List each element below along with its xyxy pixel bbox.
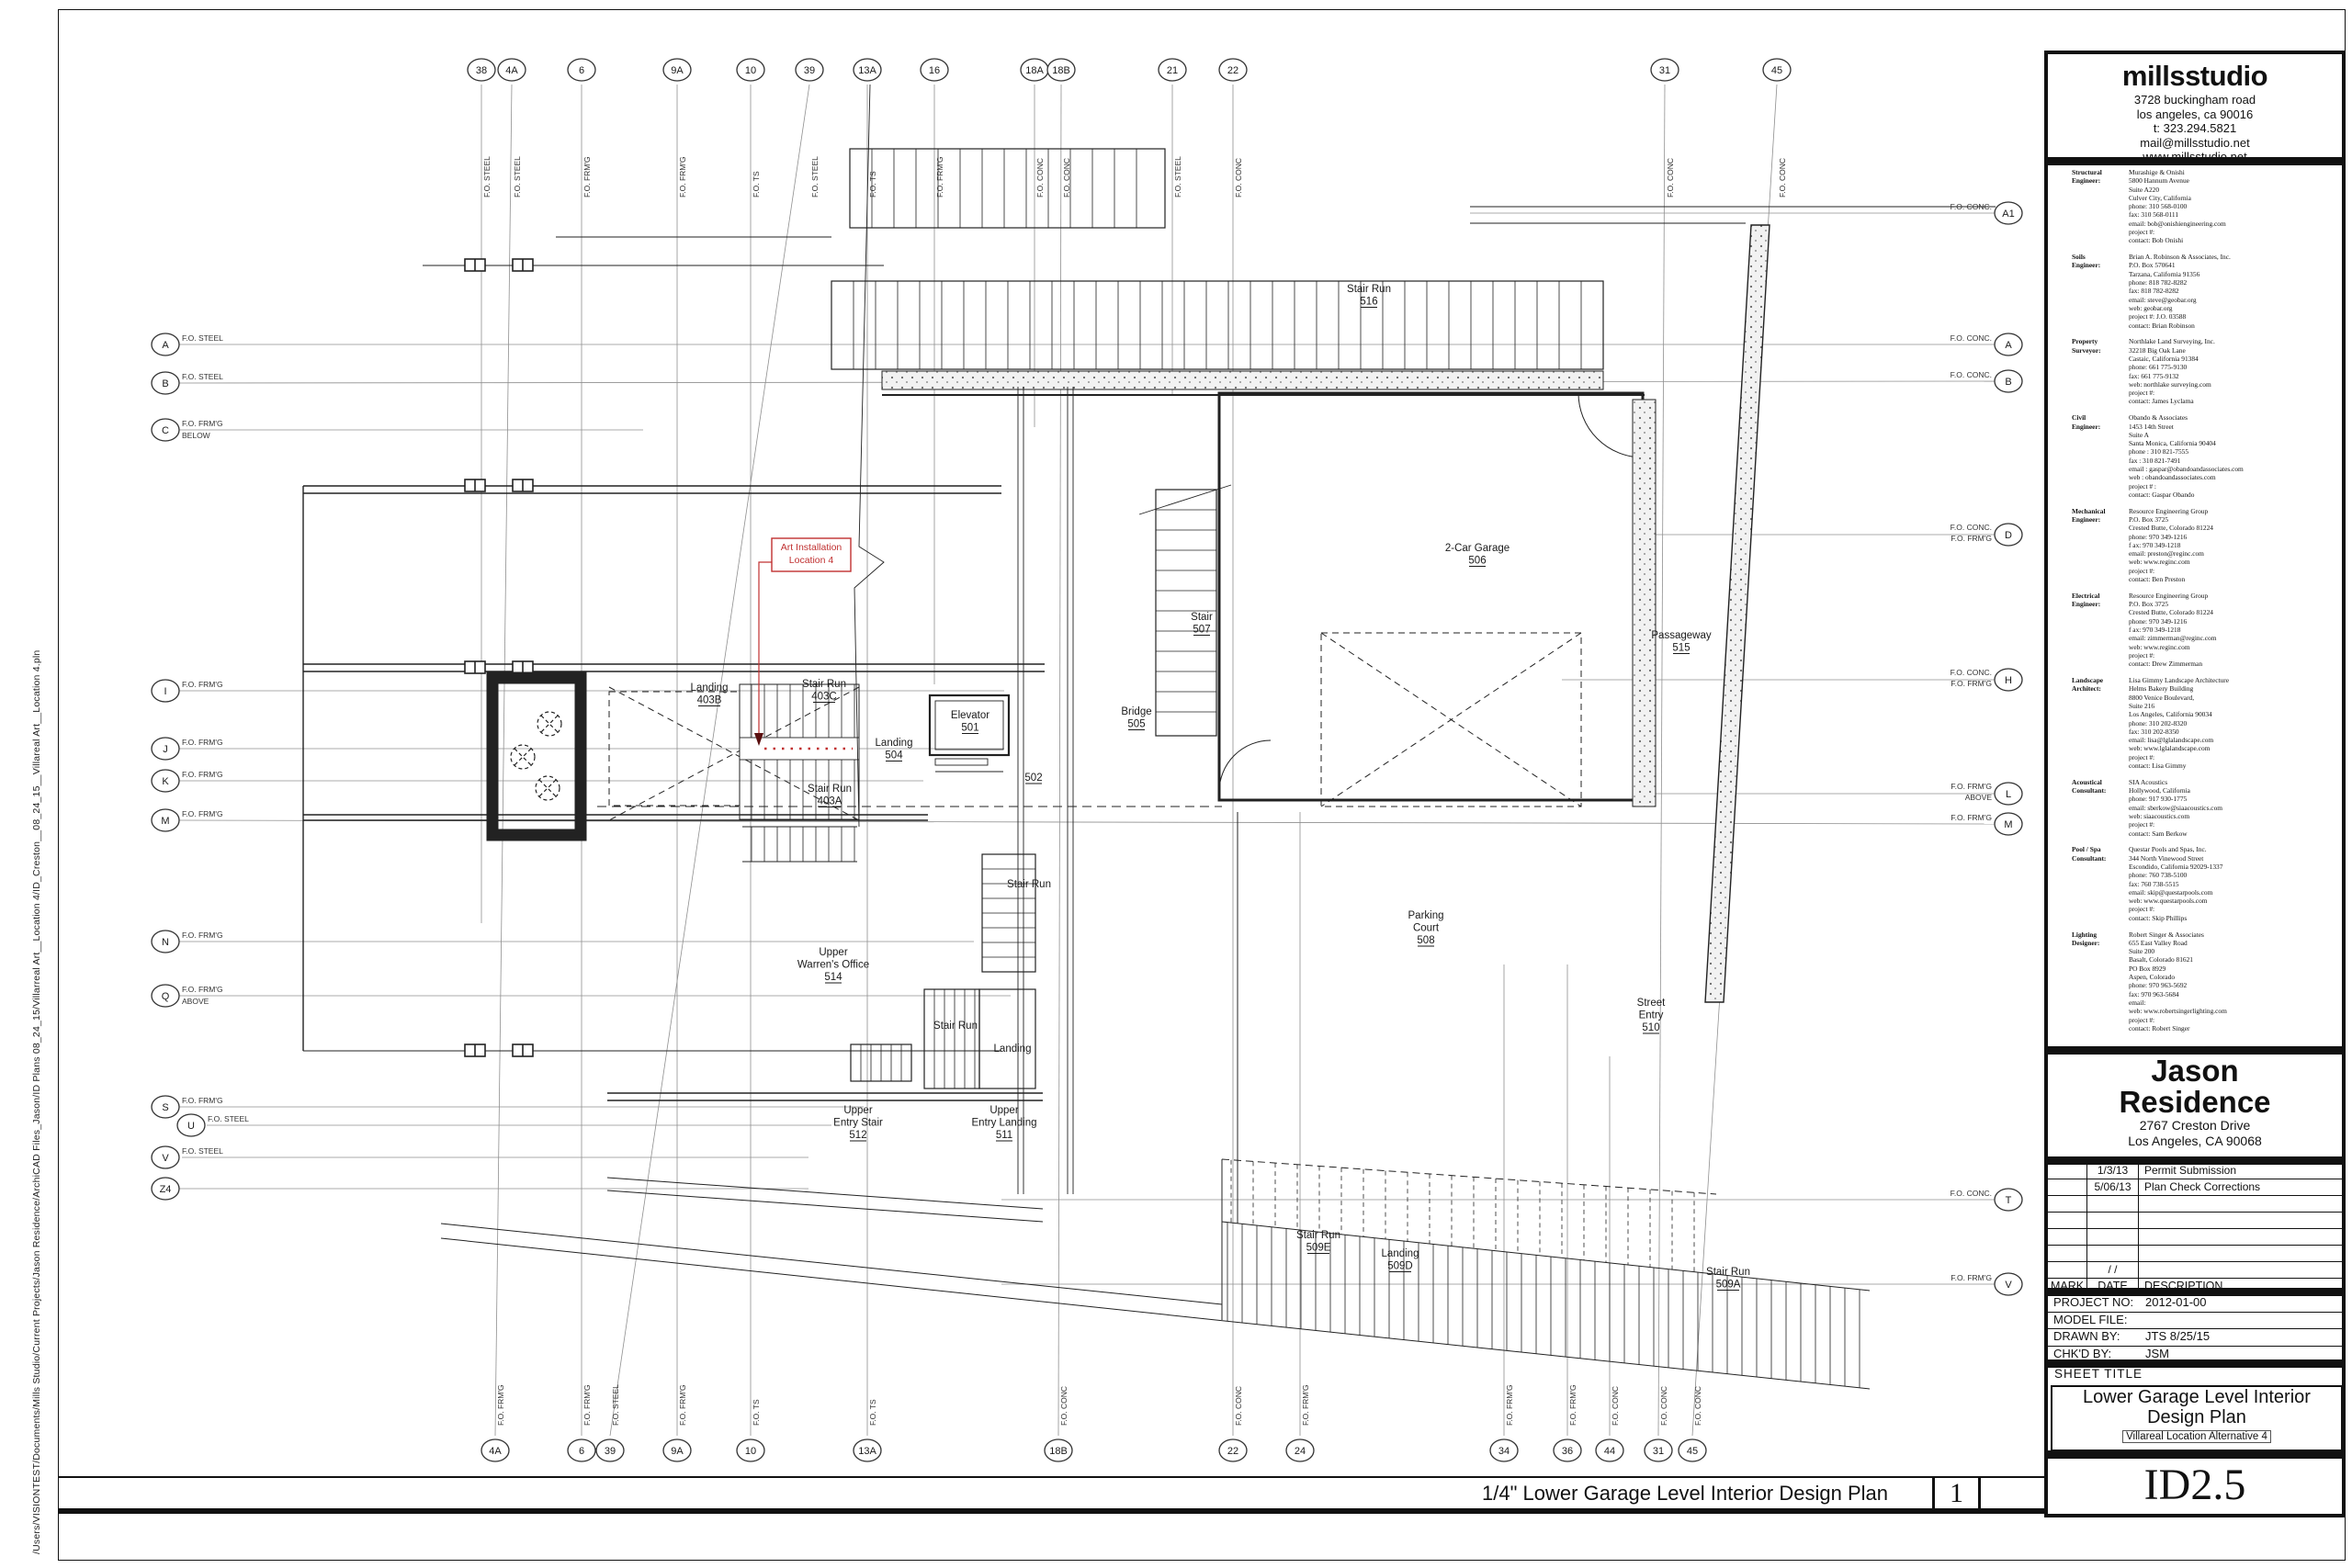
grid-note: F.O. CONC — [1666, 158, 1675, 197]
grid-note: F.O. CONC — [1234, 158, 1243, 197]
sheet-number: ID2.5 — [2048, 1458, 2342, 1513]
concrete-wall-hatch-top — [882, 371, 1603, 389]
svg-text:M: M — [2004, 819, 2012, 830]
room-label: Landing509D — [1382, 1248, 1419, 1272]
grid-note: F.O. FRM'G — [678, 1384, 687, 1426]
stair-run-516 — [831, 281, 1645, 395]
svg-text:Z4: Z4 — [160, 1184, 172, 1195]
svg-text:22: 22 — [1227, 1446, 1238, 1457]
view-number: 1 — [1935, 1478, 1978, 1508]
svg-text:Bridge: Bridge — [1121, 706, 1151, 717]
stair-507 — [1139, 485, 1271, 792]
svg-text:10: 10 — [745, 65, 756, 76]
svg-text:512: 512 — [849, 1130, 866, 1141]
consultant-entry: Lighting Designer:Robert Singer & Associ… — [2072, 931, 2342, 1033]
room-label: StreetEntry510 — [1637, 998, 1666, 1033]
upper-stair-band — [423, 149, 1165, 265]
grid-note: F.O. STEEL — [182, 1146, 223, 1156]
central-stair-403 — [609, 684, 859, 862]
revision-row: / / — [2048, 1262, 2342, 1279]
stair-treads-403b — [752, 827, 854, 862]
svg-text:I: I — [164, 686, 166, 697]
central-walls — [303, 486, 1222, 1222]
consultant-entry: Landscape Architect:Lisa Gimmy Landscape… — [2072, 676, 2342, 770]
revision-row — [2048, 1196, 2342, 1213]
grid-note: F.O. CONC. — [1951, 370, 1992, 379]
svg-text:Landing: Landing — [691, 682, 729, 694]
grid-note: F.O. FRM'G — [1951, 679, 1992, 688]
grid-note: F.O. FRM'G — [1951, 1273, 1992, 1282]
svg-text:504: 504 — [885, 750, 903, 761]
grid-note: F.O. CONC — [1693, 1386, 1702, 1426]
svg-text:18B: 18B — [1049, 1446, 1068, 1457]
title-block: millsstudio 3728 buckingham road los ang… — [2044, 51, 2346, 1517]
grid-note: F.O. FRM'G — [182, 680, 223, 689]
grid-note: F.O. CONC. — [1951, 1189, 1992, 1198]
grid-note: F.O. CONC — [1659, 1386, 1668, 1426]
consultant-entry: Electrical Engineer:Resource Engineering… — [2072, 592, 2342, 669]
sheet-title-header: SHEET TITLE — [2048, 1367, 2342, 1385]
grid-note: F.O. FRM'G — [582, 1384, 592, 1426]
svg-text:Stair: Stair — [1191, 612, 1213, 623]
grid-note: F.O. FRM'G — [182, 419, 223, 428]
svg-text:9A: 9A — [671, 1446, 684, 1457]
grid-note: F.O. FRM'G — [182, 738, 223, 747]
grid-note: F.O. FRM'G — [1951, 782, 1992, 791]
grid-note: F.O. STEEL — [482, 156, 492, 197]
svg-text:39: 39 — [804, 65, 815, 76]
svg-text:44: 44 — [1604, 1446, 1615, 1457]
grid-note: F.O. CONC — [1611, 1386, 1620, 1426]
svg-text:Entry: Entry — [1639, 1010, 1664, 1021]
plan-drawing: 38F.O. STEEL4AF.O. STEEL4AF.O. FRM'G6F.O… — [58, 9, 2044, 1476]
grid-note: F.O. STEEL — [208, 1114, 249, 1123]
svg-text:502: 502 — [1024, 773, 1042, 784]
room-label: ParkingCourt508 — [1408, 910, 1444, 946]
room-label: Landing403B — [691, 682, 729, 706]
grid-note: BELOW — [182, 431, 210, 440]
grid-note: F.O. CONC — [1062, 158, 1071, 197]
svg-text:36: 36 — [1562, 1446, 1573, 1457]
garage-outline — [1219, 393, 1643, 807]
view-title-bar: 1/4" Lower Garage Level Interior Design … — [58, 1476, 2044, 1514]
svg-text:N: N — [162, 937, 169, 948]
grid-bubbles: 38F.O. STEEL4AF.O. STEEL4AF.O. FRM'G6F.O… — [152, 59, 2022, 1461]
art-installation-annotation: Art InstallationLocation 4 — [754, 538, 853, 749]
grid-note: F.O. FRM'G — [582, 156, 592, 197]
project-name-line1: Jason — [2048, 1055, 2342, 1087]
svg-text:31: 31 — [1653, 1446, 1664, 1457]
revision-row: 1/3/13Permit Submission — [2048, 1163, 2342, 1179]
consultant-entry: Civil Engineer:Obando & Associates 1453 … — [2072, 413, 2342, 499]
revision-row: 5/06/13Plan Check Corrections — [2048, 1179, 2342, 1196]
grid-note: F.O. TS — [868, 171, 877, 197]
sheet-title-line2: Design Plan — [2052, 1407, 2341, 1427]
grid-note: F.O. CONC. — [1951, 333, 1992, 343]
room-label: UpperEntry Landing511 — [972, 1105, 1037, 1141]
room-label: Landing — [994, 1043, 1032, 1055]
svg-text:V: V — [162, 1153, 169, 1164]
svg-text:13A: 13A — [858, 1446, 876, 1457]
svg-text:24: 24 — [1295, 1446, 1306, 1457]
drawing-sheet: /Users/VISIONTEST/Documents/Mills Studio… — [0, 0, 2352, 1568]
svg-text:39: 39 — [605, 1446, 616, 1457]
street-entry-wall — [1705, 225, 1770, 1002]
svg-text:Elevator: Elevator — [951, 710, 989, 721]
room-label: Passageway515 — [1651, 630, 1711, 654]
svg-text:506: 506 — [1468, 556, 1486, 567]
firm-address1: 3728 buckingham road — [2048, 93, 2342, 107]
firm-address2: los angeles, ca 90016 — [2048, 107, 2342, 122]
svg-text:Warren's Office: Warren's Office — [797, 960, 869, 971]
consultant-entry: Structural Engineer:Murashige & Onishi 5… — [2072, 168, 2342, 245]
svg-text:Landing: Landing — [876, 738, 913, 749]
grid-note: F.O. STEEL — [1173, 156, 1182, 197]
project-name-line2: Residence — [2048, 1087, 2342, 1118]
svg-text:H: H — [2005, 675, 2012, 686]
grid-note: F.O. FRM'G — [1301, 1384, 1310, 1426]
svg-text:501: 501 — [961, 723, 978, 734]
svg-text:18B: 18B — [1052, 65, 1070, 76]
firm-header: millsstudio 3728 buckingham road los ang… — [2048, 54, 2342, 164]
grid-note: F.O. CONC — [1234, 1386, 1243, 1426]
room-label: Stair Run509E — [1296, 1230, 1340, 1254]
svg-text:403C: 403C — [811, 692, 837, 703]
svg-text:509A: 509A — [1716, 1280, 1741, 1291]
grid-note: F.O. FRM'G — [1951, 534, 1992, 543]
consultants-list: Structural Engineer:Murashige & Onishi 5… — [2048, 168, 2342, 1046]
svg-text:A: A — [2005, 340, 2012, 351]
grid-note: F.O. FRM'G — [182, 931, 223, 940]
consultant-entry: Acoustical Consultant:SIA Acoustics Holl… — [2072, 778, 2342, 838]
info-row: DRAWN BY:JTS 8/25/15 — [2048, 1329, 2342, 1347]
svg-text:31: 31 — [1659, 65, 1670, 76]
svg-text:Upper: Upper — [843, 1105, 872, 1116]
svg-text:S: S — [162, 1102, 168, 1113]
svg-text:509D: 509D — [1387, 1261, 1413, 1272]
room-label: Stair Run403A — [808, 784, 852, 807]
svg-text:Landing: Landing — [1382, 1248, 1419, 1259]
room-label: 2-Car Garage506 — [1445, 543, 1510, 567]
info-row: PROJECT NO:2012-01-00 — [2048, 1295, 2342, 1313]
svg-text:A1: A1 — [2002, 209, 2014, 220]
svg-text:9A: 9A — [671, 65, 684, 76]
svg-text:13A: 13A — [858, 65, 876, 76]
svg-text:4A: 4A — [505, 65, 518, 76]
svg-text:18A: 18A — [1025, 65, 1044, 76]
svg-text:Upper: Upper — [989, 1105, 1018, 1116]
svg-text:34: 34 — [1498, 1446, 1510, 1457]
svg-text:505: 505 — [1127, 719, 1145, 730]
sheet-title-line1: Lower Garage Level Interior — [2052, 1387, 2341, 1407]
room-label: Elevator501 — [951, 710, 989, 734]
grid-note: F.O. FRM'G — [1505, 1384, 1514, 1426]
room-label: Landing504 — [876, 738, 913, 761]
svg-text:U: U — [187, 1121, 195, 1132]
svg-text:D: D — [2005, 530, 2012, 541]
svg-text:10: 10 — [745, 1446, 756, 1457]
grid-note: ABOVE — [182, 997, 209, 1006]
view-title: 1/4" Lower Garage Level Interior Design … — [1482, 1482, 1888, 1506]
svg-text:21: 21 — [1167, 65, 1178, 76]
svg-text:22: 22 — [1227, 65, 1238, 76]
grid-note: F.O. CONC — [1059, 1386, 1069, 1426]
svg-text:Stair Run: Stair Run — [802, 679, 846, 690]
svg-text:L: L — [2006, 789, 2011, 800]
project-info-table: PROJECT NO:2012-01-00MODEL FILE:DRAWN BY… — [2048, 1295, 2342, 1363]
grid-note: F.O. FRM'G — [182, 809, 223, 818]
svg-text:V: V — [2005, 1280, 2012, 1291]
info-row: MODEL FILE: — [2048, 1313, 2342, 1330]
svg-text:Stair Run: Stair Run — [1706, 1267, 1750, 1278]
grid-note: F.O. TS — [752, 1399, 761, 1426]
consultant-entry: Pool / Spa Consultant:Questar Pools and … — [2072, 845, 2342, 922]
svg-text:508: 508 — [1417, 935, 1434, 946]
grid-note: F.O. FRM'G — [496, 1384, 505, 1426]
grid-note: F.O. CONC — [1035, 158, 1045, 197]
room-label: Stair Run516 — [1347, 284, 1391, 308]
annotation-line2: Location 4 — [789, 555, 834, 566]
svg-text:507: 507 — [1193, 625, 1210, 636]
svg-text:6: 6 — [579, 1446, 584, 1457]
svg-text:38: 38 — [476, 65, 487, 76]
svg-text:4A: 4A — [489, 1446, 502, 1457]
svg-text:A: A — [162, 340, 169, 351]
room-label: UpperWarren's Office514 — [797, 947, 869, 983]
grid-note: F.O. TS — [752, 171, 761, 197]
svg-text:509E: 509E — [1306, 1243, 1331, 1254]
svg-text:Stair Run: Stair Run — [1296, 1230, 1340, 1241]
svg-text:K: K — [162, 776, 169, 787]
svg-text:514: 514 — [824, 972, 842, 983]
passageway-wall — [1633, 400, 1656, 807]
svg-text:Stair Run: Stair Run — [933, 1021, 978, 1032]
room-label: Stair Run — [1007, 879, 1051, 890]
svg-text:Stair Run: Stair Run — [1007, 879, 1051, 890]
room-label: Stair Run — [933, 1021, 978, 1032]
svg-text:510: 510 — [1642, 1022, 1659, 1033]
garage-clearance-box — [1321, 633, 1581, 807]
grid-note: F.O. CONC. — [1951, 668, 1992, 677]
revision-row — [2048, 1229, 2342, 1246]
svg-text:B: B — [162, 378, 168, 389]
consultant-entry: Mechanical Engineer:Resource Engineering… — [2072, 507, 2342, 584]
svg-text:403B: 403B — [697, 695, 722, 706]
svg-text:403A: 403A — [818, 796, 842, 807]
room-label: Bridge505 — [1121, 706, 1151, 730]
firm-phone: t: 323.294.5821 — [2048, 121, 2342, 136]
project-address1: 2767 Creston Drive — [2048, 1118, 2342, 1134]
firm-email: mail@millsstudio.net — [2048, 136, 2342, 151]
svg-text:16: 16 — [929, 65, 940, 76]
svg-text:Parking: Parking — [1408, 910, 1444, 921]
grid-note: F.O. STEEL — [182, 333, 223, 343]
grid-note: F.O. STEEL — [810, 156, 820, 197]
annotation-leader — [759, 562, 772, 733]
room-label: 502 — [1024, 773, 1042, 784]
project-block: Jason Residence 2767 Creston Drive Los A… — [2048, 1055, 2342, 1149]
project-address2: Los Angeles, CA 90068 — [2048, 1134, 2342, 1149]
svg-text:Landing: Landing — [994, 1043, 1032, 1055]
svg-text:B: B — [2005, 377, 2011, 388]
svg-text:Stair Run: Stair Run — [808, 784, 852, 795]
svg-text:Stair Run: Stair Run — [1347, 284, 1391, 295]
consultant-entry: Property Surveyor:Northlake Land Surveyi… — [2072, 337, 2342, 405]
grid-note: F.O. STEEL — [182, 372, 223, 381]
sheet-title-box: Lower Garage Level Interior Design Plan … — [2051, 1385, 2343, 1451]
room-label: Stair507 — [1191, 612, 1213, 636]
grid-note: F.O. CONC. — [1951, 523, 1992, 532]
svg-text:Q: Q — [162, 991, 170, 1002]
grid-note: F.O. FRM'G — [1568, 1384, 1577, 1426]
svg-text:Entry Stair: Entry Stair — [833, 1118, 883, 1129]
grid-note: F.O. FRM'G — [182, 770, 223, 779]
svg-text:515: 515 — [1672, 643, 1690, 654]
revision-row — [2048, 1246, 2342, 1262]
svg-text:T: T — [2006, 1195, 2012, 1206]
svg-text:M: M — [161, 816, 169, 827]
revision-table: 1/3/13Permit Submission5/06/13Plan Check… — [2048, 1163, 2342, 1295]
divider-bar — [2048, 157, 2342, 165]
svg-text:45: 45 — [1687, 1446, 1698, 1457]
consultant-entry: Soils Engineer:Brian A. Robinson & Assoc… — [2072, 253, 2342, 330]
grid-note: F.O. FRM'G — [1951, 813, 1992, 822]
svg-text:516: 516 — [1360, 297, 1377, 308]
grid-note: F.O. CONC. — [1951, 202, 1992, 211]
svg-text:Street: Street — [1637, 998, 1666, 1009]
bridge-corridor-walls — [1018, 387, 1073, 1194]
room-label: UpperEntry Stair512 — [833, 1105, 883, 1141]
grid-note: F.O. FRM'G — [182, 985, 223, 994]
svg-text:Entry Landing: Entry Landing — [972, 1118, 1037, 1129]
stair-treads-516 — [854, 281, 1581, 369]
annotation-line1: Art Installation — [781, 542, 842, 553]
art-fixture-icons — [511, 712, 561, 800]
svg-text:6: 6 — [579, 65, 584, 76]
file-path: /Users/VISIONTEST/Documents/Mills Studio… — [31, 29, 42, 1554]
grid-note: F.O. STEEL — [513, 156, 522, 197]
art-wall — [492, 678, 581, 835]
svg-text:2-Car Garage: 2-Car Garage — [1445, 543, 1510, 554]
grid-note: ABOVE — [1965, 793, 1993, 802]
grid-note: F.O. CONC — [1778, 158, 1787, 197]
grid-note: F.O. TS — [868, 1399, 877, 1426]
svg-text:Passageway: Passageway — [1651, 630, 1711, 641]
grid-note: F.O. FRM'G — [935, 156, 944, 197]
firm-name: millsstudio — [2048, 60, 2342, 93]
building-geometry — [303, 85, 1996, 1389]
grid-note: F.O. FRM'G — [182, 1096, 223, 1105]
svg-text:Court: Court — [1413, 923, 1440, 934]
revision-row — [2048, 1213, 2342, 1229]
view-number-box: 1 — [1932, 1478, 1981, 1508]
top-right-wall-lines — [1470, 207, 1996, 223]
svg-text:J: J — [163, 744, 168, 755]
grid-note: F.O. STEEL — [611, 1384, 620, 1426]
svg-text:45: 45 — [1771, 65, 1782, 76]
grid-note: F.O. FRM'G — [678, 156, 687, 197]
svg-text:511: 511 — [996, 1130, 1012, 1141]
svg-text:Upper: Upper — [819, 947, 847, 958]
svg-text:C: C — [162, 425, 169, 436]
column-symbols — [465, 259, 533, 1056]
sheet-subtitle: Villareal Location Alternative 4 — [2122, 1430, 2271, 1443]
